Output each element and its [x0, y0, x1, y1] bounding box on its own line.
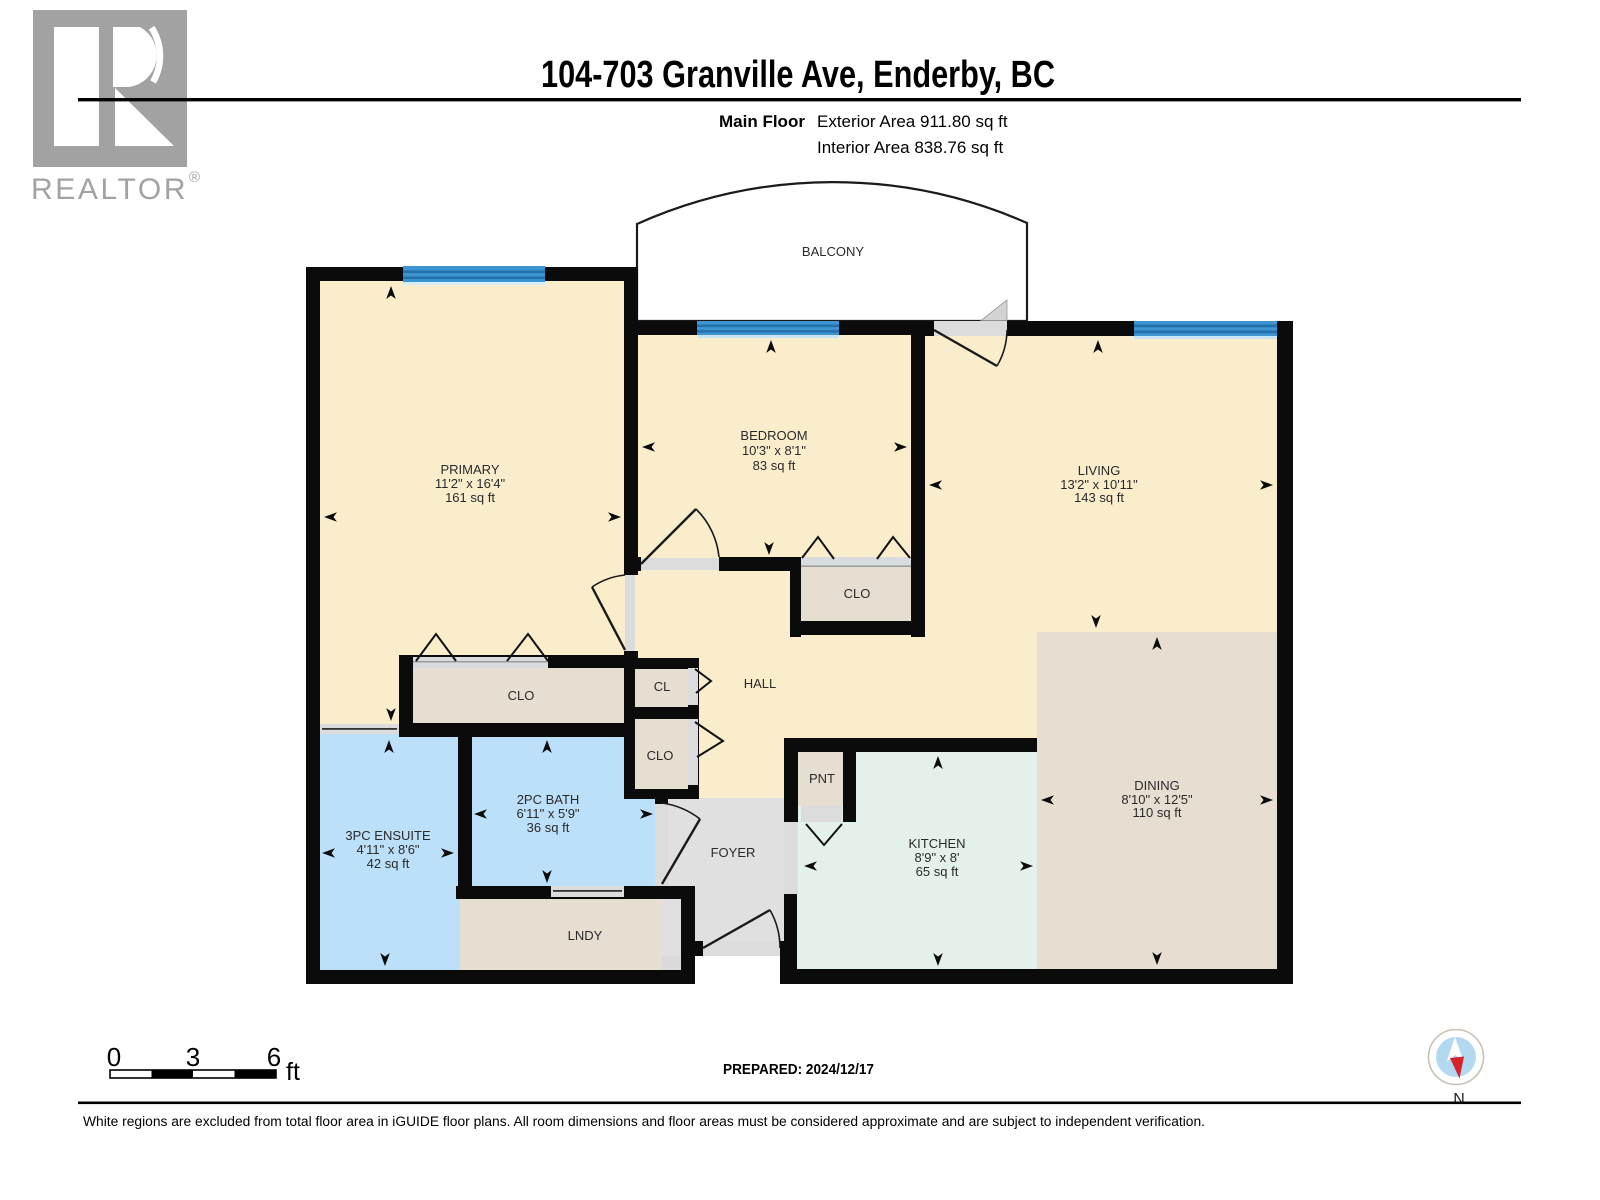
svg-text:CLO: CLO: [508, 688, 535, 703]
svg-text:CLO: CLO: [647, 748, 674, 763]
svg-text:PRIMARY: PRIMARY: [441, 462, 500, 477]
svg-text:8'9" x 8': 8'9" x 8': [915, 850, 960, 865]
svg-text:0: 0: [107, 1042, 121, 1072]
svg-text:PNT: PNT: [809, 771, 835, 786]
svg-text:ft: ft: [286, 1058, 300, 1086]
svg-text:®: ®: [189, 169, 200, 186]
svg-text:3PC ENSUITE: 3PC ENSUITE: [345, 828, 431, 843]
svg-text:2PC BATH: 2PC BATH: [517, 792, 580, 807]
svg-text:Interior Area 838.76 sq ft: Interior Area 838.76 sq ft: [817, 138, 1003, 157]
svg-text:White regions are excluded fro: White regions are excluded from total fl…: [83, 1114, 1205, 1129]
svg-text:104-703 Granville Ave, Enderby: 104-703 Granville Ave, Enderby, BC: [541, 54, 1055, 96]
svg-text:10'3" x 8'1": 10'3" x 8'1": [742, 443, 806, 458]
svg-text:PREPARED: 2024/12/17: PREPARED: 2024/12/17: [723, 1061, 874, 1078]
svg-text:LIVING: LIVING: [1078, 463, 1121, 478]
svg-text:143 sq ft: 143 sq ft: [1074, 490, 1124, 505]
svg-text:11'2" x 16'4": 11'2" x 16'4": [435, 476, 506, 491]
svg-text:110 sq ft: 110 sq ft: [1133, 805, 1182, 820]
svg-text:3: 3: [186, 1042, 200, 1072]
svg-text:Main Floor: Main Floor: [719, 112, 805, 131]
svg-text:N: N: [1453, 1091, 1465, 1108]
svg-text:6'11" x 5'9": 6'11" x 5'9": [516, 806, 579, 821]
svg-text:36 sq ft: 36 sq ft: [527, 820, 570, 835]
svg-text:CL: CL: [654, 679, 671, 694]
svg-text:161 sq ft: 161 sq ft: [445, 490, 495, 505]
svg-text:DINING: DINING: [1134, 778, 1180, 793]
svg-text:FOYER: FOYER: [711, 845, 756, 860]
svg-text:Exterior Area 911.80 sq ft: Exterior Area 911.80 sq ft: [817, 112, 1008, 131]
svg-text:CLO: CLO: [844, 586, 871, 601]
svg-text:LNDY: LNDY: [568, 928, 603, 943]
svg-text:83 sq ft: 83 sq ft: [753, 458, 796, 473]
svg-text:42 sq ft: 42 sq ft: [367, 856, 410, 871]
svg-text:65 sq ft: 65 sq ft: [916, 864, 959, 879]
svg-text:BEDROOM: BEDROOM: [740, 428, 807, 443]
svg-text:KITCHEN: KITCHEN: [908, 836, 965, 851]
svg-text:4'11" x 8'6": 4'11" x 8'6": [356, 842, 419, 857]
svg-text:HALL: HALL: [744, 676, 777, 691]
svg-text:6: 6: [267, 1042, 281, 1072]
svg-text:REALTOR: REALTOR: [31, 173, 188, 206]
svg-text:BALCONY: BALCONY: [802, 244, 864, 259]
